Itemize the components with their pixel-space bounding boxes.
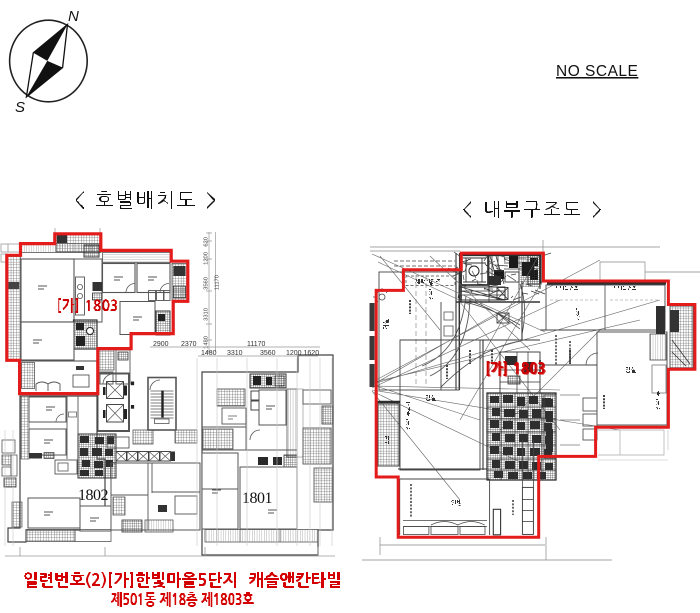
svg-text:1200 1620: 1200 1620 bbox=[286, 350, 319, 357]
svg-text:NO SCALE: NO SCALE bbox=[556, 63, 638, 80]
svg-text:1802: 1802 bbox=[78, 487, 109, 504]
svg-text:1200: 1200 bbox=[204, 252, 210, 265]
svg-text:11170: 11170 bbox=[247, 341, 266, 348]
svg-text:620: 620 bbox=[204, 237, 210, 247]
svg-text:2370: 2370 bbox=[181, 341, 197, 348]
svg-text:2900: 2900 bbox=[153, 341, 169, 348]
svg-text:N: N bbox=[68, 8, 79, 25]
svg-text:3310: 3310 bbox=[227, 350, 243, 357]
svg-text:1801: 1801 bbox=[242, 490, 273, 507]
svg-text:3560: 3560 bbox=[204, 277, 210, 290]
svg-text:S: S bbox=[15, 99, 25, 116]
svg-text:3560: 3560 bbox=[260, 350, 276, 357]
svg-text:3310: 3310 bbox=[204, 308, 210, 321]
svg-text:1480: 1480 bbox=[201, 350, 217, 357]
svg-text:11170: 11170 bbox=[215, 275, 221, 290]
